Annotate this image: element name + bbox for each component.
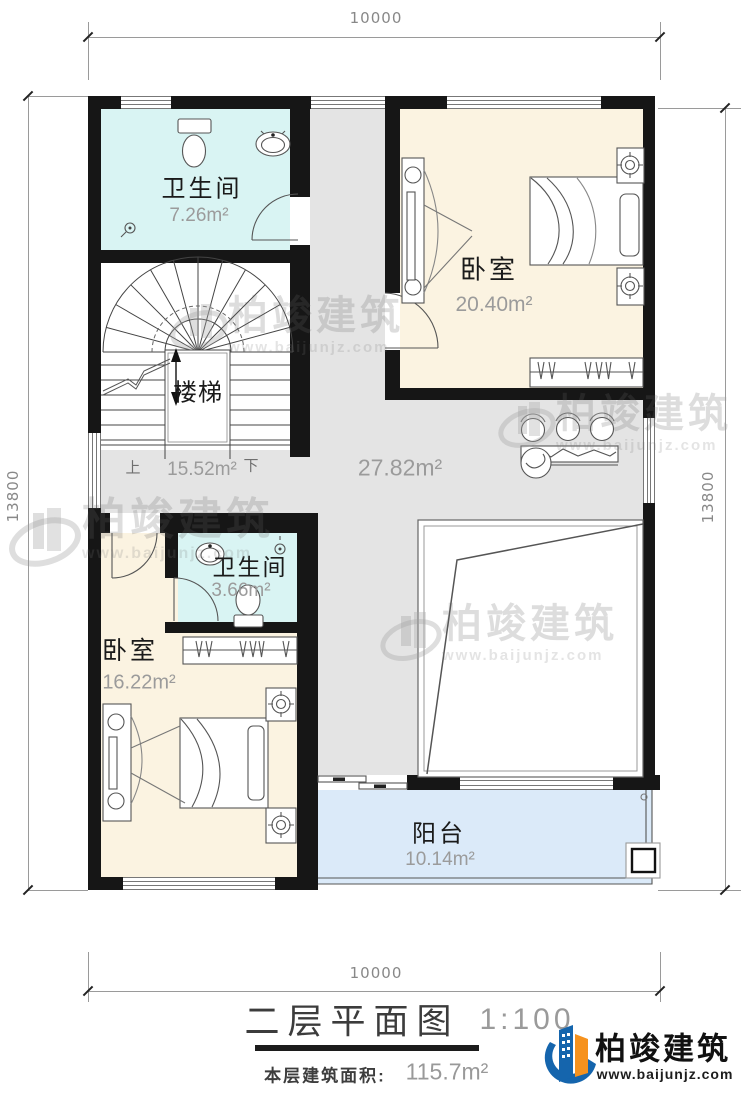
toilet-tank (234, 615, 263, 627)
label-stairs-up: 上 (125, 457, 140, 478)
label-stairs: 楼梯 (173, 373, 223, 408)
area-balcony: 10.14m² (405, 849, 475, 871)
dim-line-bottom (88, 991, 660, 992)
dim-extension-line (660, 22, 661, 80)
brand-name: 柏竣建筑 (595, 1024, 731, 1069)
title-underline (255, 1045, 479, 1051)
dim-extension-line (658, 890, 741, 891)
label-bath-top: 卫生间 (162, 169, 243, 204)
stool (557, 418, 580, 441)
door-bedroom-bottom (112, 533, 157, 578)
dim-line-left (28, 96, 29, 891)
stool (522, 419, 545, 442)
tv (109, 737, 117, 789)
area-bath-top: 7.26m² (169, 205, 228, 227)
area-bedroom-top: 20.40m² (455, 293, 532, 317)
label-bath-small: 卫生间 (213, 548, 288, 582)
plan-linework (0, 0, 750, 1095)
area-hall: 27.82m² (358, 455, 442, 482)
area-stairs: 15.52m² (167, 459, 237, 481)
plan-title: 二层平面图 (244, 994, 459, 1045)
brand-logo-icon (542, 1020, 602, 1090)
toilet-bowl (183, 135, 206, 167)
bedroom-top-furniture (402, 148, 644, 387)
dim-extension-line (28, 890, 88, 891)
bar-sink (521, 448, 551, 478)
area-bath-small: 3.66m² (211, 580, 270, 602)
bedroom-bottom-furniture (103, 637, 297, 843)
dim-line-right (725, 108, 726, 890)
floor-plan-canvas: 卫生间 7.26m² 卧室 20.40m² 楼梯 上 15.52m² 下 27.… (0, 0, 750, 1095)
void-opening (418, 520, 643, 777)
dim-extension-line (88, 22, 89, 80)
label-bedroom-top: 卧室 (460, 250, 518, 287)
pillow (248, 726, 264, 800)
dim-value-left: 13800 (4, 470, 22, 523)
dim-value-bottom: 10000 (350, 964, 403, 982)
brand-url: www.baijunjz.com (597, 1066, 734, 1082)
dim-line-top (88, 37, 660, 38)
dim-extension-line (660, 952, 661, 1002)
dim-value-right: 13800 (699, 471, 717, 524)
area-bedroom-bottom: 16.22m² (102, 672, 175, 695)
balcony-railing (318, 790, 652, 884)
floor-area-value: 115.7m² (406, 1059, 489, 1086)
balcony-details (318, 776, 660, 884)
door-bath-top (252, 194, 298, 240)
label-bedroom-bottom: 卧室 (102, 631, 158, 667)
pillow (620, 194, 639, 256)
dim-value-top: 10000 (350, 9, 403, 27)
floor-area-label: 本层建筑面积: (264, 1062, 386, 1087)
tv (407, 192, 415, 280)
dim-extension-line (28, 96, 88, 97)
label-stairs-down: 下 (243, 455, 258, 476)
label-balcony: 阳台 (412, 814, 466, 849)
dim-extension-line (88, 952, 89, 1002)
staircase (101, 257, 293, 459)
toilet-tank (178, 119, 211, 133)
hall-bar-and-stools (521, 413, 618, 478)
stool (591, 418, 614, 441)
dim-extension-line (658, 108, 741, 109)
